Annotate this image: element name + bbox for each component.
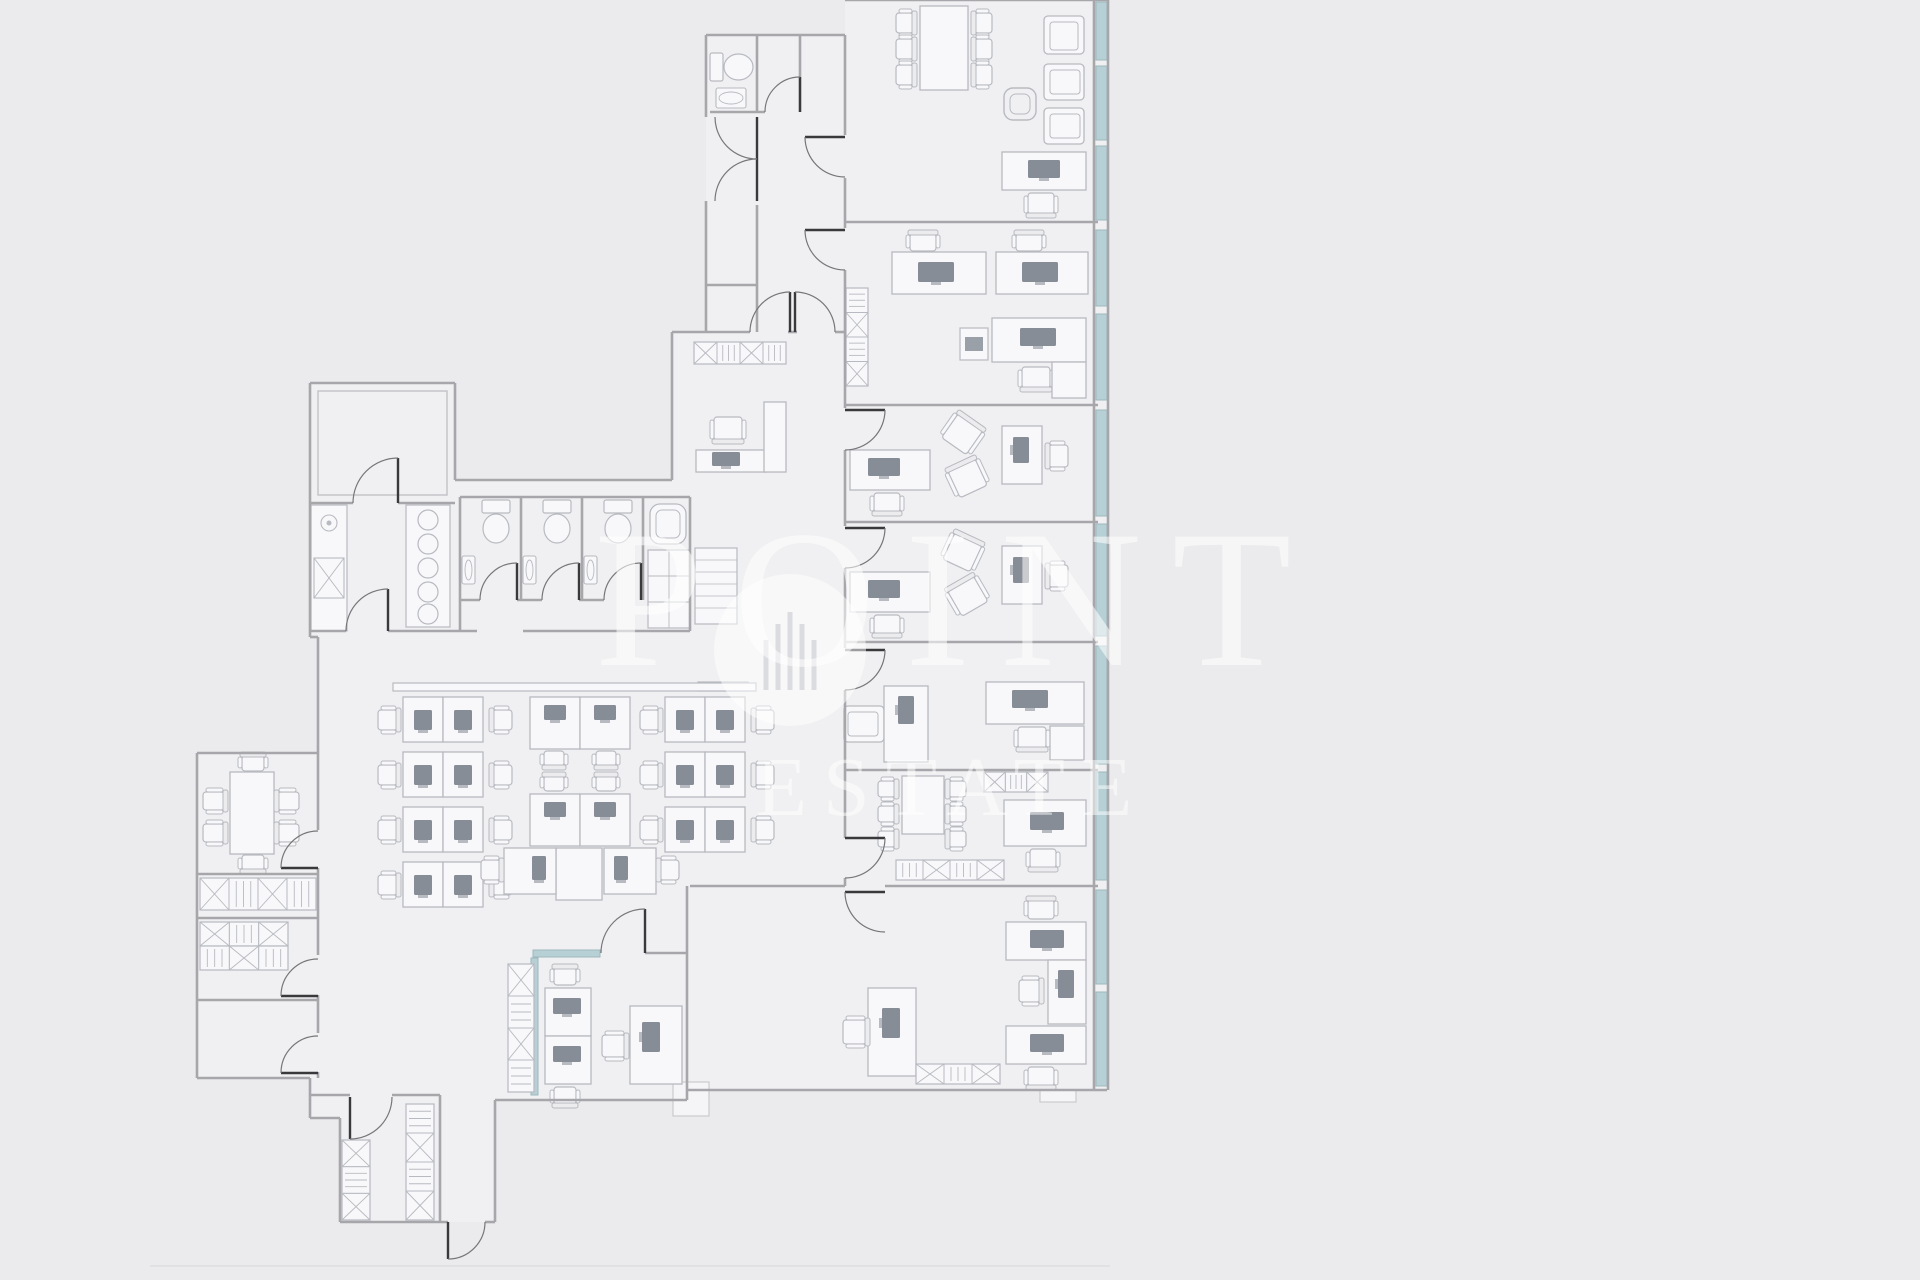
pc-icon (716, 710, 734, 733)
chair-icon (378, 761, 401, 789)
chair-icon (1045, 441, 1068, 471)
chair-icon (843, 1016, 870, 1048)
chair-icon (602, 1031, 629, 1061)
pc-icon (454, 820, 472, 843)
sink-icon (462, 556, 475, 584)
pc-icon (639, 1022, 660, 1052)
floorplan-drawing: POINT ESTATE (0, 0, 1920, 1280)
chair-icon (203, 788, 228, 814)
cab-icon (200, 878, 316, 910)
chair-icon (489, 816, 512, 844)
cab-icon (200, 922, 288, 946)
chair-icon (710, 417, 746, 444)
chair-icon (540, 772, 568, 791)
watermark-line1: POINT (594, 491, 1321, 708)
stove-icon (314, 558, 344, 598)
chair-icon (1024, 1067, 1058, 1090)
toilet-icon (482, 500, 510, 543)
pc-icon (532, 856, 546, 883)
chair-icon (896, 35, 917, 63)
armchair-icon (1044, 16, 1084, 54)
pc-icon (614, 856, 628, 883)
desk-icon (504, 848, 556, 894)
armchair-icon (1044, 64, 1084, 100)
chair-icon (1019, 976, 1044, 1006)
cab-icon (916, 1064, 1000, 1084)
table-icon (230, 772, 274, 854)
chair-icon (896, 9, 917, 37)
chair-icon (550, 964, 580, 985)
armchair-icon (844, 706, 884, 742)
chair-icon (971, 35, 992, 63)
chair-icon (592, 751, 620, 770)
chair-icon (489, 706, 512, 734)
chair-icon (489, 761, 512, 789)
pc-icon (676, 710, 694, 733)
chair-icon (640, 816, 663, 844)
armchair-icon (1044, 108, 1084, 144)
chair-icon (1024, 896, 1058, 919)
watermark-line2: ESTATE (756, 741, 1149, 834)
pc-icon (918, 262, 954, 285)
chair-icon (592, 772, 620, 791)
chair-icon (906, 230, 940, 251)
pc-icon (414, 710, 432, 733)
pc-icon (676, 765, 694, 788)
chair-icon (378, 871, 401, 899)
pc-icon (414, 820, 432, 843)
cab-icon (694, 342, 786, 364)
chair-icon (378, 706, 401, 734)
pc-icon (868, 458, 900, 479)
pc-icon (1030, 930, 1064, 951)
pc-icon (1030, 1034, 1064, 1055)
pc-icon (676, 820, 694, 843)
cab-icon (200, 946, 288, 970)
table-icon (920, 6, 968, 90)
pc-icon (454, 875, 472, 898)
chair-icon (378, 816, 401, 844)
toilet-icon (710, 53, 753, 81)
chair-icon (656, 856, 679, 884)
chair-icon (1012, 230, 1046, 251)
pc-icon (879, 1008, 900, 1038)
pc-icon (716, 765, 734, 788)
counter-icon (406, 505, 450, 627)
desk-icon (604, 848, 656, 894)
toilet-icon (543, 500, 571, 543)
desk-icon (764, 402, 786, 472)
floorplan-page: POINT ESTATE (0, 0, 1920, 1280)
pc-icon (1020, 328, 1056, 349)
chair-icon (274, 820, 299, 846)
pc-icon (1028, 160, 1060, 181)
chair-icon (1026, 849, 1060, 872)
chair-icon (274, 788, 299, 814)
printer-icon (960, 328, 988, 360)
chair-icon (481, 856, 504, 884)
cab-icon (342, 1140, 370, 1220)
pc-icon (716, 820, 734, 843)
cab-icon (508, 964, 534, 1092)
cab-icon (896, 860, 1004, 880)
pc-icon (414, 875, 432, 898)
chair-icon (203, 820, 228, 846)
cab-icon (406, 1104, 434, 1220)
chair-icon (550, 1087, 580, 1108)
pc-icon (1022, 262, 1058, 285)
desk-icon (1052, 362, 1086, 398)
pc-icon (454, 765, 472, 788)
pc-icon (414, 765, 432, 788)
sink-icon (716, 88, 746, 108)
pc-icon (454, 710, 472, 733)
chair-icon (640, 761, 663, 789)
chair-icon (238, 752, 268, 771)
chair-icon (971, 61, 992, 89)
sink-icon (523, 556, 536, 584)
chair-icon (640, 706, 663, 734)
chair-icon (971, 9, 992, 37)
chair-icon (1018, 367, 1054, 392)
table-icon (556, 848, 602, 900)
chair-icon (540, 751, 568, 770)
chair-icon (1024, 193, 1058, 218)
pillar-icon (1040, 1090, 1076, 1102)
chair-icon (896, 61, 917, 89)
chair-icon (238, 855, 268, 874)
cab-icon (846, 288, 868, 386)
